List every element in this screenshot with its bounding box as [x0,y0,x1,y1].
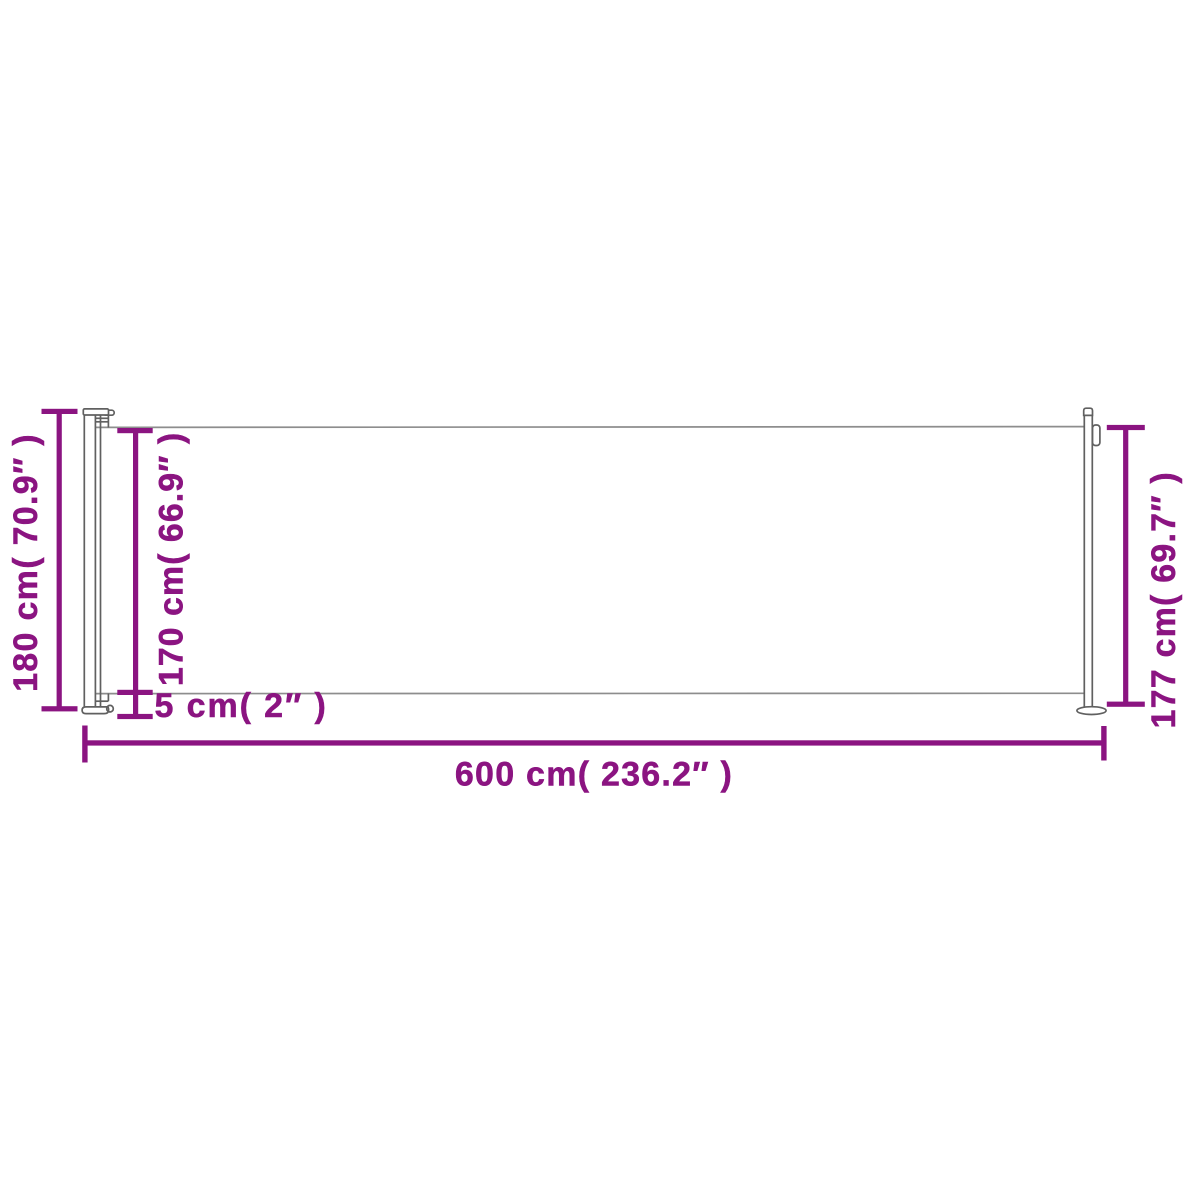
svg-text:170 cm( 66.9″ ): 170 cm( 66.9″ ) [153,432,191,686]
svg-text:5 cm( 2″ ): 5 cm( 2″ ) [155,687,328,725]
svg-text:177 cm( 69.7″ ): 177 cm( 69.7″ ) [1145,471,1183,728]
svg-text:600 cm( 236.2″ ): 600 cm( 236.2″ ) [455,756,733,794]
svg-text:180 cm( 70.9″ ): 180 cm( 70.9″ ) [7,433,45,692]
